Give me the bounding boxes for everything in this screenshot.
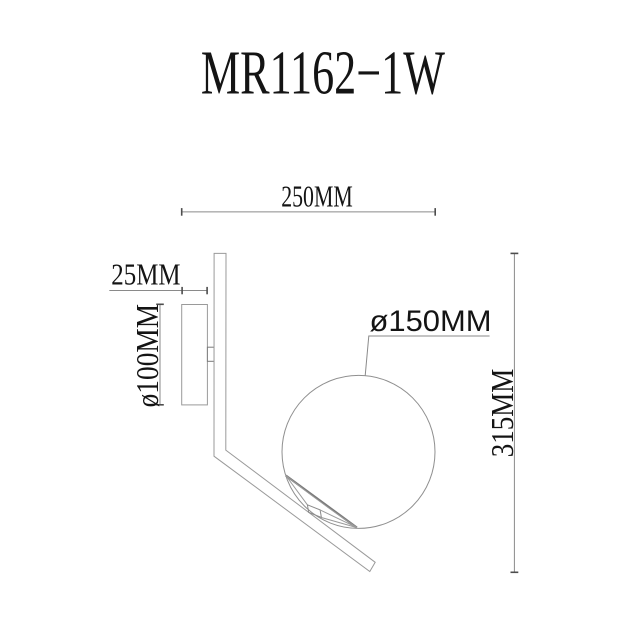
svg-text:250MM: 250MM — [281, 179, 353, 214]
svg-text:MR1162−1W: MR1162−1W — [201, 40, 445, 108]
svg-text:315MM: 315MM — [484, 369, 520, 458]
svg-text:ø100MM: ø100MM — [129, 304, 165, 408]
svg-text:ø150MM: ø150MM — [370, 305, 492, 338]
svg-text:25MM: 25MM — [111, 256, 180, 291]
